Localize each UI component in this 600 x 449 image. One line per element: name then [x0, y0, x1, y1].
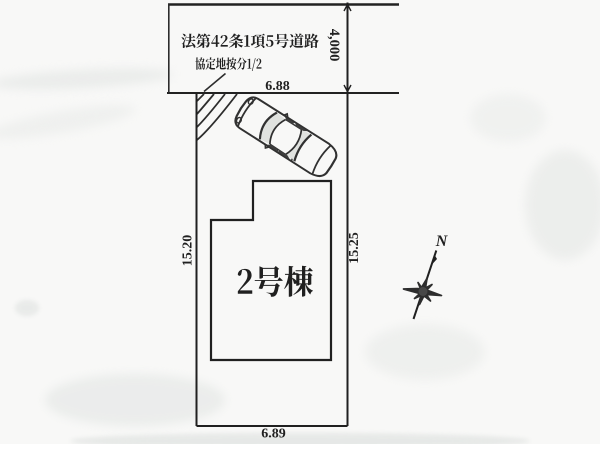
svg-text:15.20: 15.20	[181, 235, 196, 267]
svg-text:6.88: 6.88	[265, 79, 290, 94]
svg-text:N: N	[435, 233, 449, 250]
svg-text:15.25: 15.25	[347, 232, 362, 264]
svg-text:4,000: 4,000	[326, 29, 342, 62]
svg-text:6.89: 6.89	[261, 427, 286, 442]
